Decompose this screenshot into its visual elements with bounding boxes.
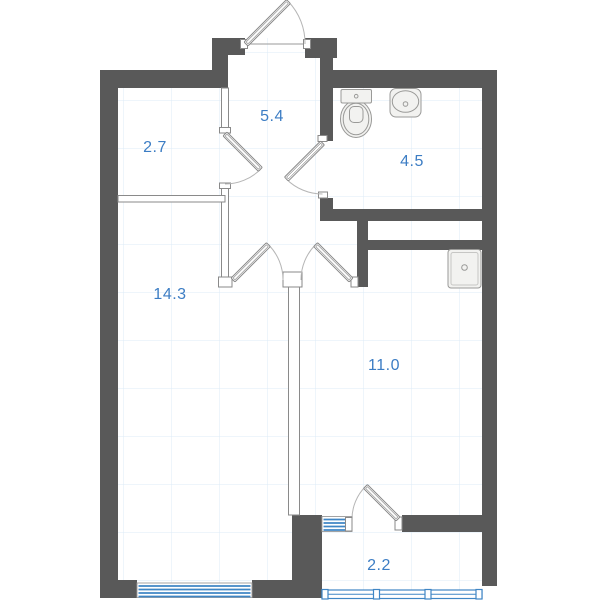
room-label-11-0: 11.0 [368, 357, 400, 375]
wall-bottom-left [100, 580, 137, 598]
window-balcony-sidelight [322, 517, 352, 532]
wall-left [100, 70, 118, 598]
partition-cap [219, 277, 233, 287]
room-label-2-7: 2.7 [143, 139, 167, 157]
balcony-glazing [322, 590, 482, 600]
wall-right [482, 70, 497, 586]
room-label-14-3: 14.3 [153, 286, 186, 304]
room-label-4-5: 4.5 [400, 153, 424, 171]
toilet-icon [341, 90, 372, 138]
partition-room14-room11 [289, 287, 300, 515]
door-jamb [318, 136, 327, 142]
window-living-room [137, 583, 252, 598]
wall-top-left [100, 70, 215, 88]
partition-cap [220, 128, 231, 134]
partition-center-cap [283, 272, 302, 287]
wall-bottom-mid [252, 580, 322, 598]
partition-room27-east-upper [222, 88, 229, 133]
wall-bathroom-west-upper [320, 38, 333, 141]
wall-room11-north [357, 240, 482, 250]
room-label-5-4: 5.4 [260, 108, 284, 126]
wall-top-right [333, 70, 497, 88]
floor-plan-drawing [0, 0, 600, 600]
wall-duct-post [357, 221, 368, 287]
sink-icon [390, 89, 421, 118]
wall-entry-left-post [212, 38, 228, 88]
wall-balcony-north [402, 515, 482, 532]
wall-bathroom-south [320, 209, 482, 221]
door-jamb [319, 192, 328, 198]
washing-machine-icon [448, 250, 481, 289]
partition-room27-south [118, 196, 225, 203]
room-label-2-2: 2.2 [367, 557, 391, 575]
floor-plan: 2.7 5.4 4.5 14.3 11.0 2.2 [0, 0, 600, 600]
